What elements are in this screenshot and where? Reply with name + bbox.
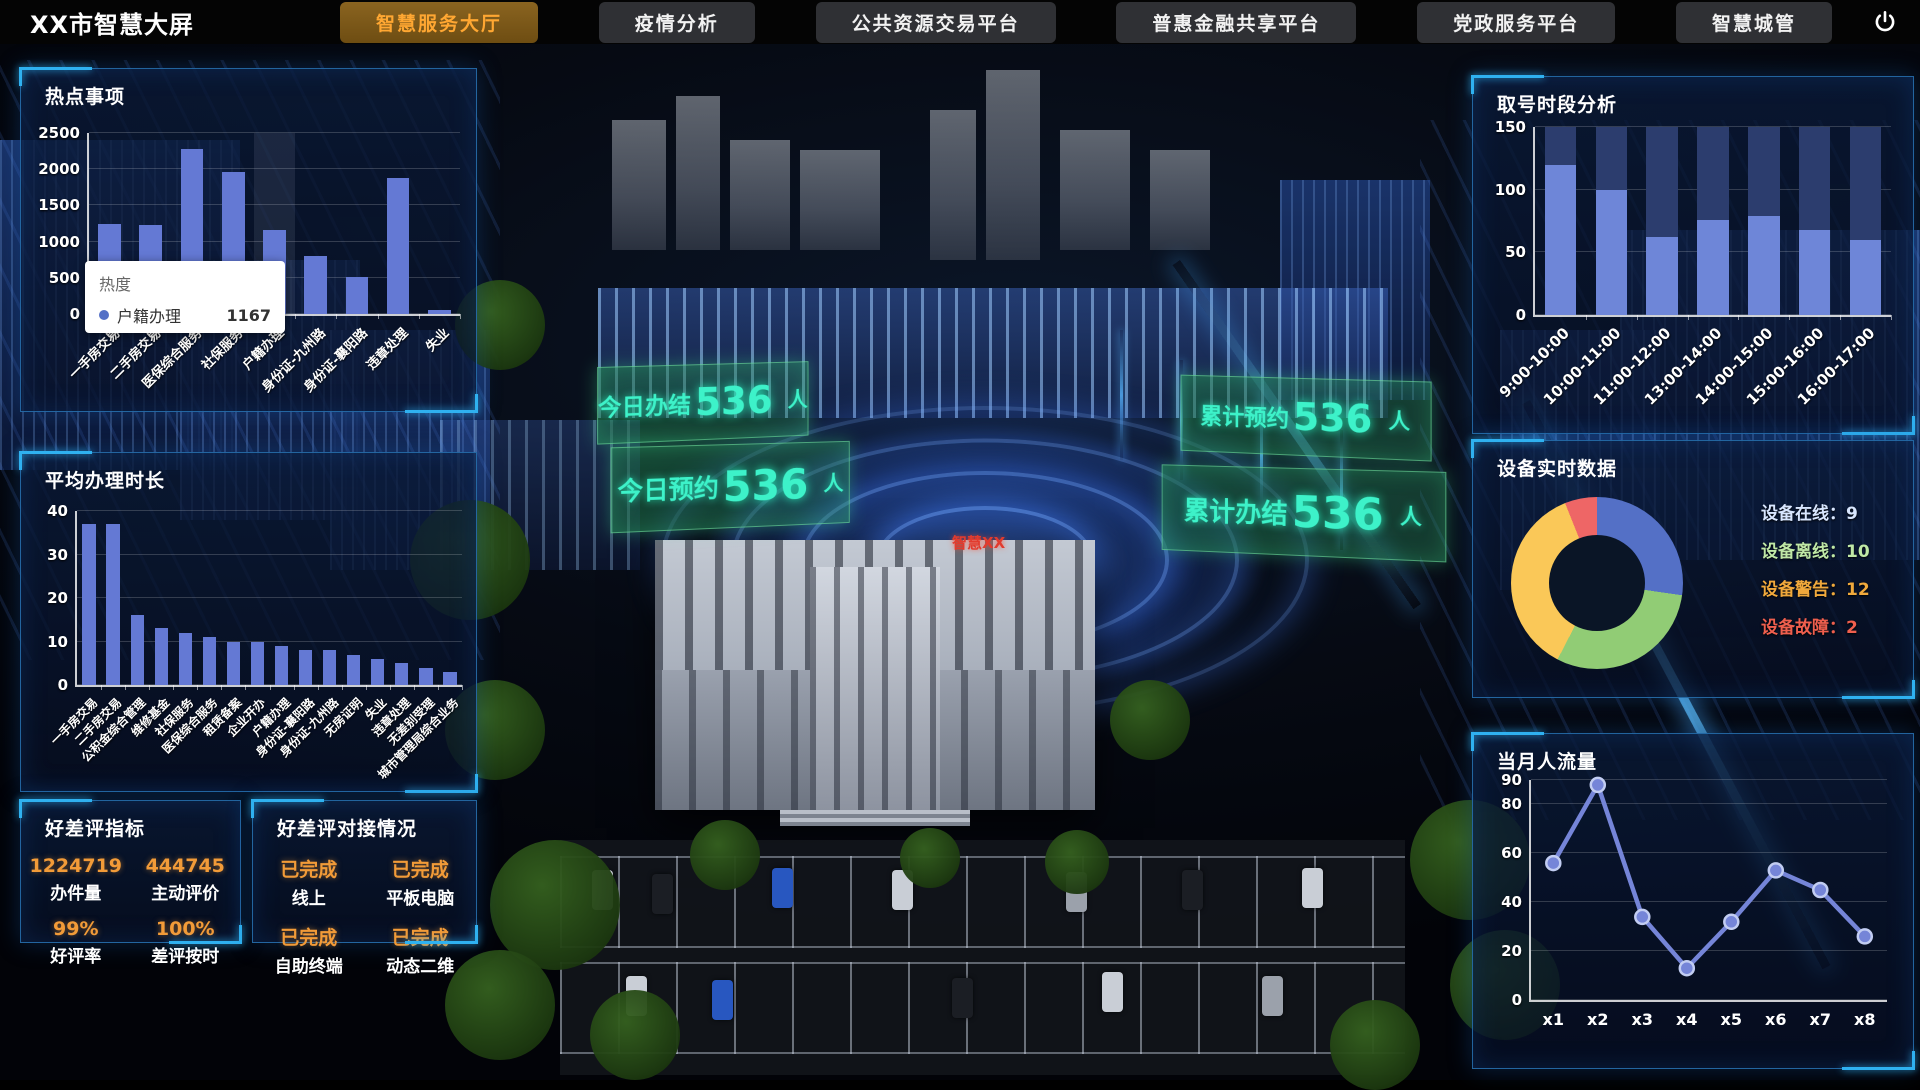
kpi-value: 已完成 <box>253 923 365 950</box>
kpi-label: 差评按时 <box>131 942 241 967</box>
y-axis-tick: 2000 <box>38 160 89 178</box>
building <box>930 110 976 260</box>
bar <box>1646 237 1678 315</box>
bar <box>82 524 95 685</box>
x-tick-mark <box>149 685 150 690</box>
x-tick-mark <box>1637 315 1638 320</box>
holo-label-text: 累计办结 <box>1184 489 1288 531</box>
car <box>652 874 673 914</box>
x-axis-label: x8 <box>1854 1010 1875 1029</box>
bar <box>227 642 240 686</box>
car <box>1302 868 1323 908</box>
x-tick-mark <box>270 685 271 690</box>
holo-label-text: 今日办结 <box>598 385 691 423</box>
x-tick-mark <box>1789 315 1790 320</box>
panel-device-realtime: 设备实时数据 设备在线：9设备离线：10设备警告：12设备故障：2 <box>1472 440 1914 698</box>
kpi-label: 线上 <box>253 884 365 909</box>
tab-smart-service-hall[interactable]: 智慧服务大厅 <box>340 2 538 43</box>
tab-public-resource-trading[interactable]: 公共资源交易平台 <box>816 2 1056 43</box>
x-axis-label: x6 <box>1765 1010 1786 1029</box>
x-tick-mark <box>366 685 367 690</box>
tooltip-title: 热度 <box>99 271 271 295</box>
kpi-label: 好评率 <box>21 942 131 967</box>
gridline <box>77 510 462 511</box>
building-name-label: 智慧XX <box>952 532 1005 553</box>
y-axis-tick: 40 <box>47 502 77 520</box>
holo-label-value: 536 <box>1293 395 1372 442</box>
x-axis-label: x7 <box>1810 1010 1831 1029</box>
building <box>1150 150 1210 250</box>
series-dot-icon <box>99 310 109 320</box>
bar <box>275 646 288 685</box>
bar <box>203 637 216 685</box>
building <box>612 120 666 250</box>
kpi-label: 办件量 <box>21 879 131 904</box>
panel-rating-docking: 好差评对接情况 已完成 线上 已完成 平板电脑 已完成 自助终端 已完成 动态二… <box>252 800 477 943</box>
panel-rating-kpi: 好差评指标 1224719 办件量 444745 主动评价 99% 好评率 10… <box>20 800 241 943</box>
x-tick-mark <box>173 685 174 690</box>
kpi-item: 已完成 线上 <box>253 855 365 909</box>
holo-label-text: 今日预约 <box>617 468 718 508</box>
panel-avg-processing-time: 平均办理时长 010203040一手房交易二手房交易公积金综合管理维修基金社保服… <box>20 452 477 792</box>
kpi-grid: 1224719 办件量 444745 主动评价 99% 好评率 100% 差评按… <box>21 855 240 967</box>
tree <box>1110 680 1190 760</box>
x-tick-mark <box>197 685 198 690</box>
panel-title: 好差评指标 <box>21 801 240 841</box>
x-tick-mark <box>125 685 126 690</box>
y-axis-tick: 90 <box>1501 771 1531 789</box>
x-axis-label: 失业 <box>421 323 453 355</box>
kpi-label: 主动评价 <box>131 879 241 904</box>
x-axis-label: x3 <box>1632 1010 1653 1029</box>
holo-label-unit: 人 <box>824 467 844 497</box>
x-axis-label: x1 <box>1543 1010 1564 1029</box>
kpi-label: 动态二维 <box>365 952 477 977</box>
tree <box>590 990 680 1080</box>
panel-title: 平均办理时长 <box>21 453 476 493</box>
panel-title: 好差评对接情况 <box>253 801 476 841</box>
government-building <box>655 540 1095 810</box>
y-axis-tick: 40 <box>1501 893 1531 911</box>
x-tick-mark <box>438 685 439 690</box>
y-axis-tick: 20 <box>1501 942 1531 960</box>
y-axis-tick: 20 <box>47 589 77 607</box>
bar <box>395 663 408 685</box>
bar <box>371 659 384 685</box>
holo-label-total-booked: 累计预约536人 <box>1181 375 1432 462</box>
kpi-value: 已完成 <box>365 855 477 882</box>
x-tick-mark <box>318 685 319 690</box>
bar <box>347 655 360 685</box>
tooltip-value: 1167 <box>226 306 271 325</box>
y-axis-tick: 0 <box>58 676 77 694</box>
kpi-item: 已完成 自助终端 <box>253 923 365 977</box>
bar <box>251 642 264 686</box>
bar <box>299 650 312 685</box>
nav-tabs: 智慧服务大厅 疫情分析 公共资源交易平台 普惠金融共享平台 党政服务平台 智慧城… <box>340 2 1872 43</box>
page-title: XX市智慧大屏 <box>30 5 340 40</box>
x-axis-label: x4 <box>1676 1010 1697 1029</box>
tab-inclusive-finance[interactable]: 普惠金融共享平台 <box>1116 2 1356 43</box>
legend-item: 设备在线：9 <box>1761 499 1870 524</box>
tab-epidemic-analysis[interactable]: 疫情分析 <box>599 2 755 43</box>
holo-label-value: 536 <box>723 459 808 511</box>
panel-title: 设备实时数据 <box>1473 441 1913 481</box>
car <box>952 978 973 1018</box>
holo-label-text: 累计预约 <box>1200 397 1289 434</box>
x-tick-mark <box>1586 315 1587 320</box>
holo-label-value: 536 <box>695 378 772 424</box>
x-tick-mark <box>1891 315 1892 320</box>
panel-queue-period-analysis: 取号时段分析 0501001509:00-10:0010:00-11:0011:… <box>1472 76 1914 434</box>
line-series <box>1531 780 1887 1000</box>
bar <box>419 668 432 685</box>
bar <box>1850 240 1882 315</box>
x-tick-mark <box>1688 315 1689 320</box>
y-axis-tick: 50 <box>1505 243 1535 261</box>
building-steps <box>780 810 970 826</box>
car <box>712 980 733 1020</box>
x-tick-mark <box>294 685 295 690</box>
building <box>676 96 720 250</box>
kpi-value: 1224719 <box>21 855 131 877</box>
x-tick-mark <box>1738 315 1739 320</box>
building <box>986 70 1040 260</box>
tab-party-gov-service[interactable]: 党政服务平台 <box>1417 2 1615 43</box>
y-axis-tick: 1000 <box>38 233 89 251</box>
y-axis-tick: 60 <box>1501 844 1531 862</box>
panel-hot-topics: 热点事项 05001000150020002500一手房交易二手房交易医保综合服… <box>20 68 477 412</box>
chart-tooltip: 热度 户籍办理 1167 <box>85 261 285 333</box>
tree <box>1045 830 1109 894</box>
x-tick-mark <box>295 314 296 319</box>
holo-label-total-completed: 累计办结536人 <box>1162 464 1447 562</box>
tree <box>900 828 960 888</box>
bar <box>304 256 327 314</box>
x-tick-mark <box>336 314 337 319</box>
kpi-label: 自助终端 <box>253 952 365 977</box>
kpi-label: 平板电脑 <box>365 884 477 909</box>
y-axis-tick: 10 <box>47 633 77 651</box>
y-axis-tick: 0 <box>1516 306 1535 324</box>
bar <box>443 672 456 685</box>
kpi-item: 444745 主动评价 <box>131 855 241 904</box>
x-tick-mark <box>378 314 379 319</box>
y-axis-tick: 0 <box>1512 991 1531 1009</box>
gridline <box>77 597 462 598</box>
kpi-value: 99% <box>21 918 131 940</box>
x-tick-mark <box>390 685 391 690</box>
bar <box>179 633 192 685</box>
x-tick-mark <box>342 685 343 690</box>
kpi-value: 已完成 <box>253 855 365 882</box>
parking-row <box>560 856 1405 948</box>
device-status-legend: 设备在线：9设备离线：10设备警告：12设备故障：2 <box>1761 499 1870 651</box>
building <box>1060 130 1130 250</box>
legend-item: 设备离线：10 <box>1761 537 1870 562</box>
holo-label-unit: 人 <box>788 384 808 414</box>
y-axis-tick: 80 <box>1501 795 1531 813</box>
bar <box>106 524 119 685</box>
tooltip-series: 户籍办理 <box>117 303 181 327</box>
y-axis-tick: 30 <box>47 546 77 564</box>
x-tick-mark <box>414 685 415 690</box>
y-axis-tick: 1500 <box>38 196 89 214</box>
x-axis-label: 违章处理 <box>361 323 411 373</box>
building <box>800 150 880 250</box>
top-nav-bar: XX市智慧大屏 智慧服务大厅 疫情分析 公共资源交易平台 普惠金融共享平台 党政… <box>0 0 1920 44</box>
x-tick-mark <box>460 314 461 319</box>
holo-label-today-completed: 今日办结536人 <box>597 361 808 445</box>
holo-label-value: 536 <box>1292 486 1384 541</box>
legend-item: 设备警告：12 <box>1761 575 1870 600</box>
holo-label-today-booked: 今日预约536人 <box>611 441 850 534</box>
car <box>1182 870 1203 910</box>
bar <box>155 628 168 685</box>
panel-title: 取号时段分析 <box>1473 77 1913 117</box>
x-tick-mark <box>1840 315 1841 320</box>
kpi-value: 已完成 <box>365 923 477 950</box>
parking-lot <box>560 840 1405 1075</box>
bar <box>1697 220 1729 315</box>
bar <box>346 277 369 314</box>
building <box>730 140 790 250</box>
x-tick-mark <box>101 685 102 690</box>
bar <box>1596 190 1628 315</box>
car <box>772 868 793 908</box>
car <box>1102 972 1123 1012</box>
bar <box>1748 216 1780 315</box>
device-status-donut-chart[interactable] <box>1511 497 1683 669</box>
tree <box>1330 1000 1420 1090</box>
x-axis-label: x5 <box>1721 1010 1742 1029</box>
power-icon[interactable] <box>1872 9 1898 35</box>
x-tick-mark <box>221 685 222 690</box>
x-axis-label: x2 <box>1587 1010 1608 1029</box>
y-axis-tick: 2500 <box>38 124 89 142</box>
queue-period-bar-chart[interactable]: 0501001509:00-10:0010:00-11:0011:00-12:0… <box>1533 127 1891 317</box>
bar <box>428 310 451 314</box>
panel-title: 热点事项 <box>21 69 476 109</box>
bar <box>1799 230 1831 315</box>
tab-smart-urban-mgmt[interactable]: 智慧城管 <box>1676 2 1832 43</box>
x-tick-mark <box>462 685 463 690</box>
panel-month-visitors: 当月人流量 02040608090x1x2x3x4x5x6x7x8 <box>1472 733 1914 1069</box>
kpi-item: 已完成 平板电脑 <box>365 855 477 909</box>
bar <box>131 615 144 685</box>
kpi-value: 444745 <box>131 855 241 877</box>
car <box>1262 976 1283 1016</box>
bar <box>387 178 410 314</box>
tree <box>690 820 760 890</box>
y-axis-tick: 500 <box>49 269 89 287</box>
bar <box>323 650 336 685</box>
avg-time-bar-chart[interactable]: 010203040一手房交易二手房交易公积金综合管理维修基金社保服务医保综合服务… <box>75 511 462 687</box>
holo-label-unit: 人 <box>1389 405 1411 436</box>
kpi-grid: 已完成 线上 已完成 平板电脑 已完成 自助终端 已完成 动态二维 <box>253 855 476 977</box>
tooltip-row: 户籍办理 1167 <box>99 303 271 327</box>
visitors-line-chart[interactable]: 02040608090x1x2x3x4x5x6x7x8 <box>1529 780 1887 1002</box>
y-axis-tick: 150 <box>1495 118 1535 136</box>
kpi-item: 1224719 办件量 <box>21 855 131 904</box>
holo-label-unit: 人 <box>1400 500 1422 531</box>
panel-title: 当月人流量 <box>1473 734 1913 774</box>
kpi-item: 99% 好评率 <box>21 918 131 967</box>
bar <box>1545 165 1577 315</box>
kpi-item: 100% 差评按时 <box>131 918 241 967</box>
kpi-item: 已完成 动态二维 <box>365 923 477 977</box>
y-axis-tick: 100 <box>1495 181 1535 199</box>
x-tick-mark <box>245 685 246 690</box>
x-tick-mark <box>419 314 420 319</box>
legend-item: 设备故障：2 <box>1761 613 1870 638</box>
building-portico <box>810 567 940 810</box>
gridline <box>77 554 462 555</box>
kpi-value: 100% <box>131 918 241 940</box>
